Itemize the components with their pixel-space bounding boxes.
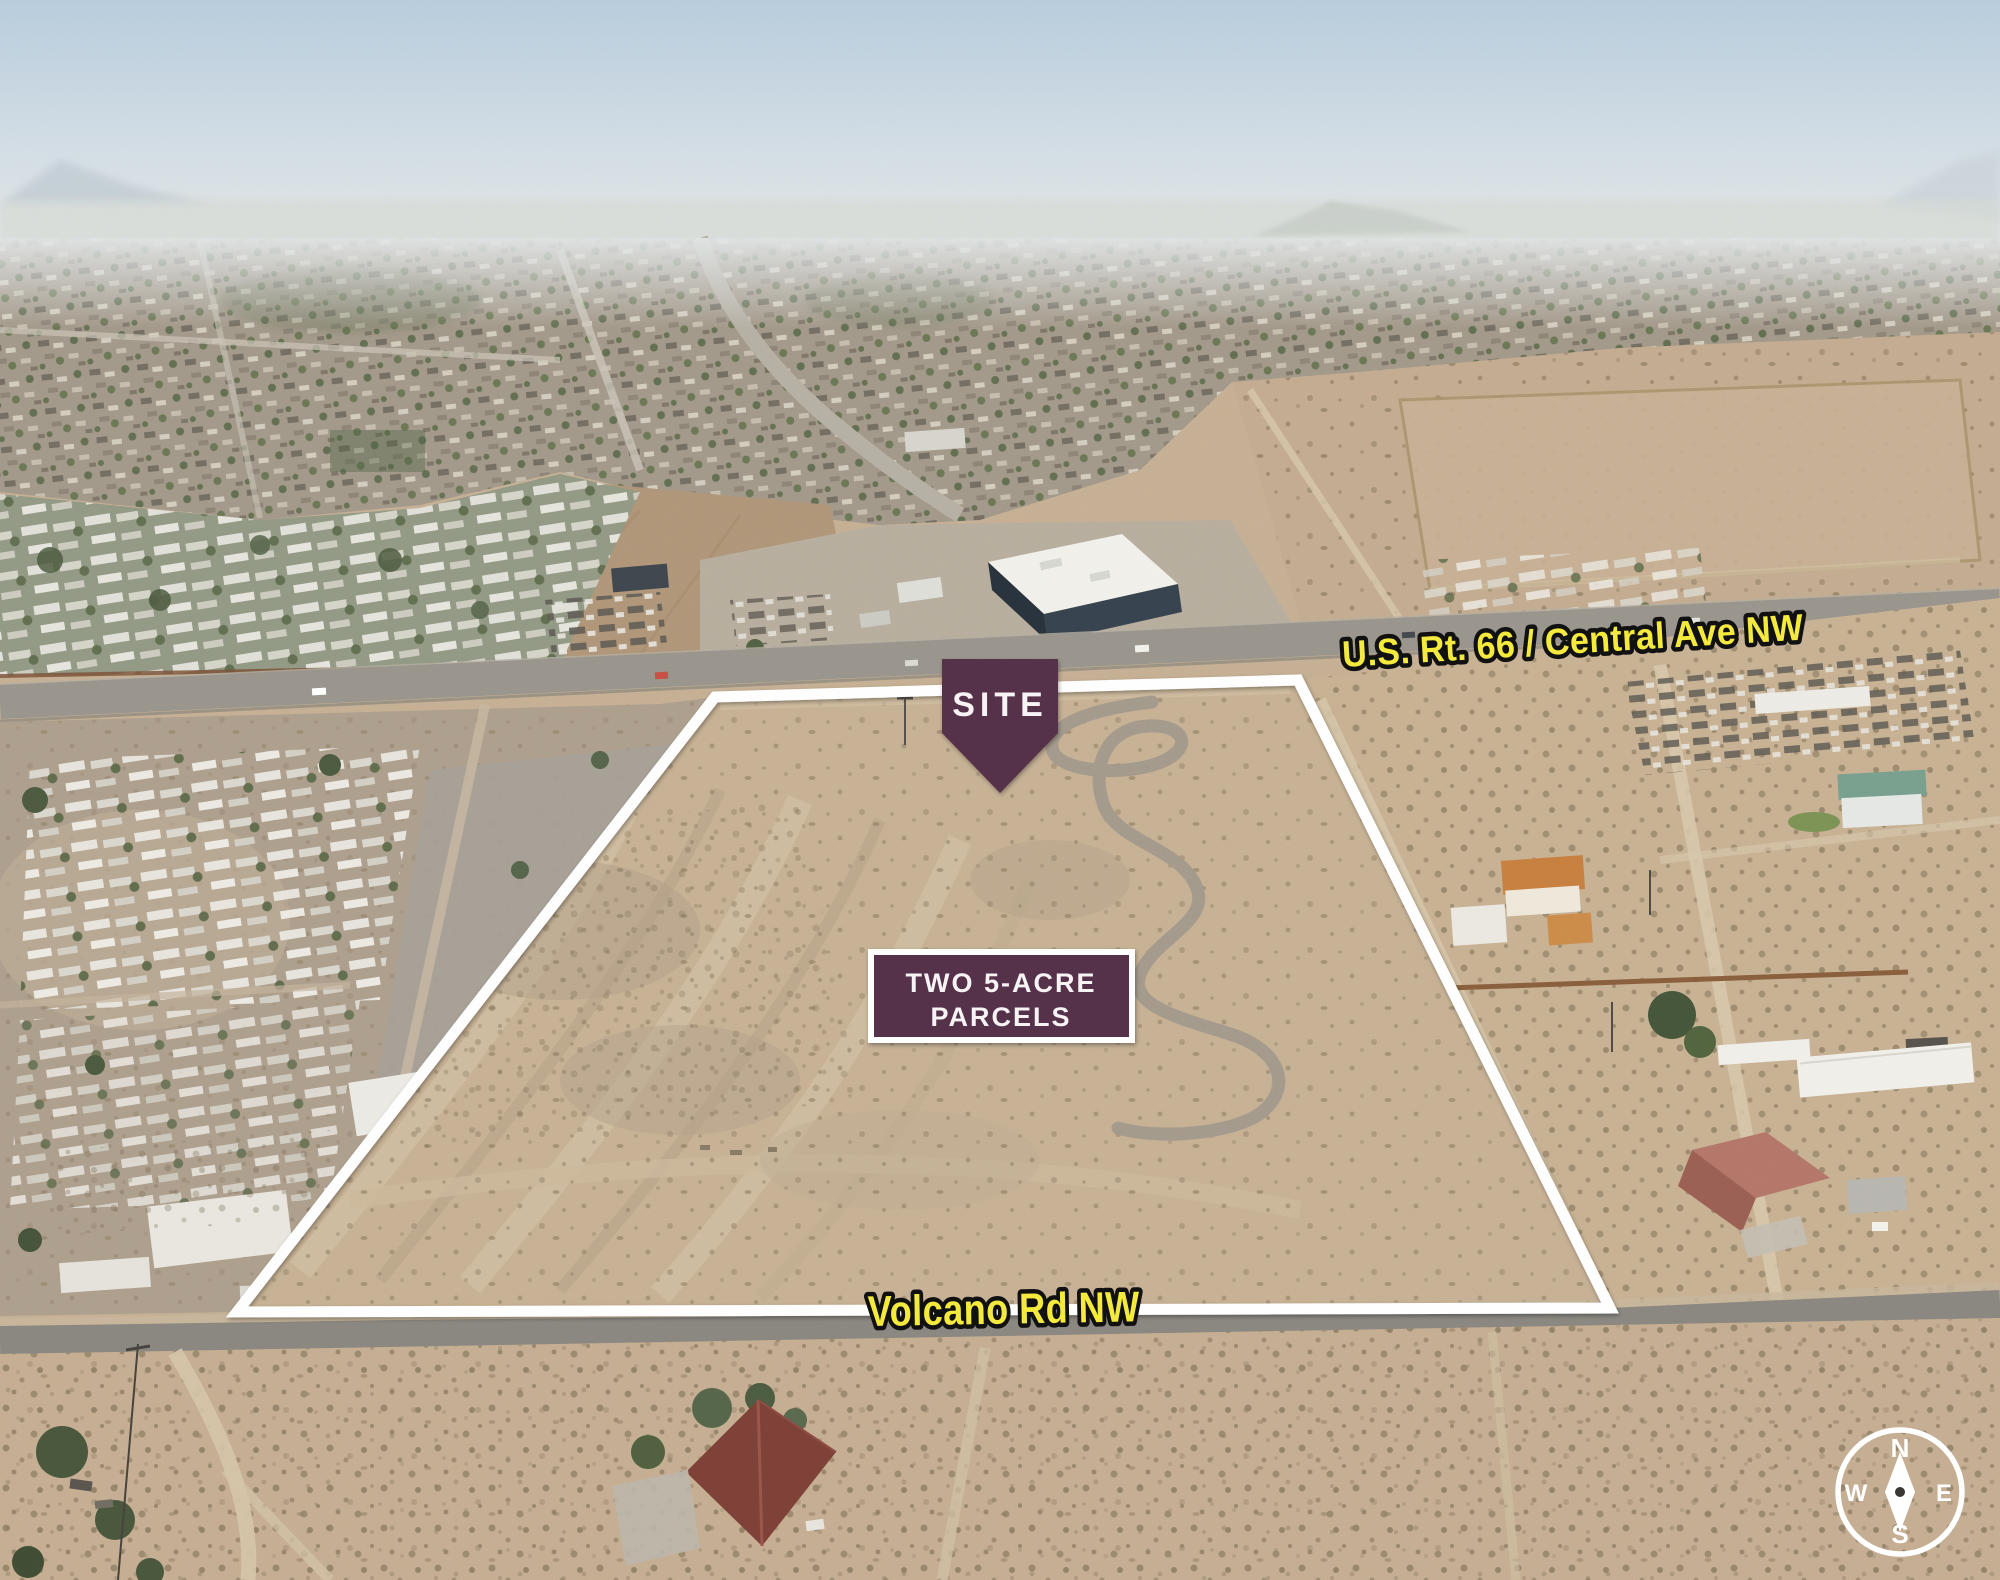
parcel-badge: TWO 5-ACRE PARCELS bbox=[871, 952, 1132, 1040]
compass-east: E bbox=[1936, 1480, 1952, 1507]
compass-west: W bbox=[1845, 1480, 1868, 1507]
compass-south: S bbox=[1891, 1519, 1908, 1549]
aerial-photo: U.S. Rt. 66 / Central Ave NW Volcano Rd … bbox=[0, 0, 2000, 1580]
south-road-label: Volcano Rd NW bbox=[867, 1283, 1140, 1336]
parcel-badge-line1: TWO 5-ACRE bbox=[906, 968, 1097, 998]
parcel-badge-line2: PARCELS bbox=[930, 1002, 1071, 1032]
compass-rose: N E S W bbox=[1838, 1430, 1962, 1554]
aerial-site-map: U.S. Rt. 66 / Central Ave NW Volcano Rd … bbox=[0, 0, 2000, 1580]
compass-north: N bbox=[1891, 1433, 1910, 1463]
site-marker-label: SITE bbox=[952, 686, 1048, 724]
svg-text:Volcano Rd NW: Volcano Rd NW bbox=[867, 1283, 1140, 1336]
compass-hub bbox=[1895, 1487, 1905, 1497]
